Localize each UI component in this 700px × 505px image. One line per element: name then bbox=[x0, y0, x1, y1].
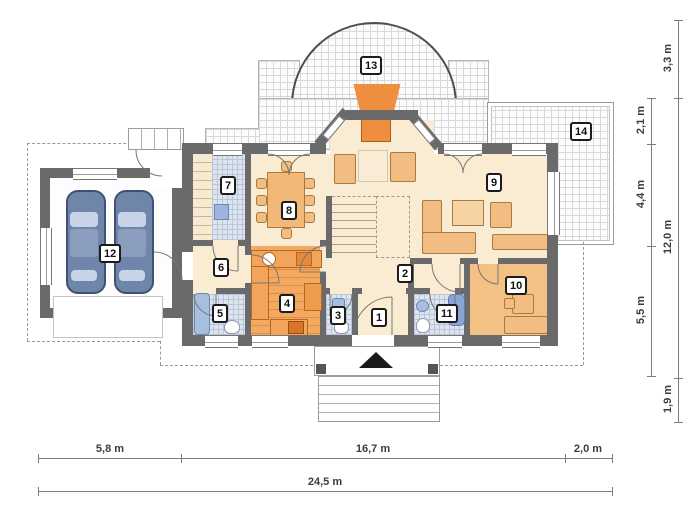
room-label-14: 14 bbox=[570, 122, 592, 141]
car-roof bbox=[70, 229, 98, 257]
car-rear-window bbox=[119, 270, 145, 281]
wall bbox=[326, 196, 332, 258]
dim-tick bbox=[674, 378, 683, 379]
dim-label-12-0: 12,0 m bbox=[662, 207, 674, 267]
garage-apron bbox=[53, 296, 163, 338]
chair bbox=[304, 212, 315, 223]
desk bbox=[504, 316, 548, 334]
wall bbox=[352, 294, 358, 335]
porch-post-right bbox=[428, 364, 438, 374]
basement-stairs bbox=[193, 154, 212, 244]
wall bbox=[394, 335, 428, 346]
french-door bbox=[268, 143, 310, 156]
wall bbox=[547, 143, 558, 172]
dim-label-2-1: 2,1 m bbox=[635, 90, 647, 150]
car-roof bbox=[118, 229, 146, 257]
wall bbox=[414, 288, 430, 294]
dim-label-24-5: 24,5 m bbox=[295, 476, 355, 488]
chair bbox=[304, 178, 315, 189]
chair bbox=[256, 178, 267, 189]
room-label-9: 9 bbox=[486, 173, 502, 192]
dim-line-bottom-total bbox=[38, 491, 612, 492]
sideboard bbox=[492, 234, 552, 250]
sink bbox=[416, 300, 429, 312]
car-rear-window bbox=[71, 270, 97, 281]
chair bbox=[281, 228, 292, 239]
room-label-12: 12 bbox=[99, 244, 121, 263]
rug bbox=[358, 150, 388, 182]
wall bbox=[540, 335, 558, 346]
kitchen-sink bbox=[262, 252, 276, 266]
wall bbox=[288, 335, 352, 346]
wall bbox=[482, 143, 512, 154]
floor-plan: 1 2 3 4 5 6 7 8 9 10 11 12 13 14 5,8 m 1… bbox=[0, 0, 700, 505]
roof-outline-left bbox=[27, 143, 28, 341]
wall bbox=[182, 335, 205, 346]
dim-tick bbox=[647, 246, 656, 247]
dim-label-3-3: 3,3 m bbox=[662, 28, 674, 88]
stove bbox=[288, 321, 304, 334]
dim-tick bbox=[612, 454, 613, 463]
room-label-2: 2 bbox=[397, 264, 413, 283]
roof-outline-step bbox=[160, 341, 161, 365]
garage-window-top bbox=[73, 168, 117, 180]
dim-tick bbox=[647, 376, 656, 377]
dim-label-5-8: 5,8 m bbox=[80, 443, 140, 455]
table bbox=[512, 294, 534, 314]
chair bbox=[304, 195, 315, 206]
porch-post-left bbox=[316, 364, 326, 374]
car-windshield bbox=[118, 212, 146, 227]
roof-outline-garage-bottom bbox=[27, 341, 160, 342]
window bbox=[502, 335, 540, 348]
window bbox=[252, 335, 288, 348]
car bbox=[66, 190, 106, 294]
dim-tick bbox=[612, 487, 613, 496]
dim-tick bbox=[674, 422, 683, 423]
dim-tick bbox=[565, 454, 566, 463]
wall bbox=[462, 335, 502, 346]
dim-tick bbox=[38, 454, 39, 463]
dim-tick bbox=[181, 454, 182, 463]
wall bbox=[193, 240, 213, 246]
dim-line-bottom-segments bbox=[38, 458, 612, 459]
dim-tick bbox=[38, 487, 39, 496]
room-label-8: 8 bbox=[281, 201, 297, 220]
room-label-6: 6 bbox=[213, 258, 229, 277]
dim-tick bbox=[674, 98, 683, 99]
dim-line-right-inner bbox=[651, 98, 652, 376]
garage-side-porch bbox=[150, 150, 182, 188]
room-label-4: 4 bbox=[279, 294, 295, 313]
window bbox=[512, 143, 546, 156]
room-label-11: 11 bbox=[436, 304, 458, 323]
bathtub bbox=[194, 293, 210, 335]
staircase-treads bbox=[332, 196, 376, 259]
loveseat bbox=[334, 154, 356, 184]
fridge bbox=[304, 283, 322, 311]
room-label-10: 10 bbox=[505, 276, 527, 295]
car bbox=[114, 190, 154, 294]
chair bbox=[256, 212, 267, 223]
terrace-door-window bbox=[547, 172, 560, 235]
window bbox=[213, 143, 242, 156]
chair bbox=[281, 161, 292, 172]
dim-label-2-0: 2,0 m bbox=[558, 443, 618, 455]
window bbox=[205, 335, 238, 348]
loveseat bbox=[390, 152, 416, 182]
room-label-13: 13 bbox=[360, 56, 382, 75]
roof-outline-right bbox=[583, 242, 584, 365]
chair bbox=[256, 195, 267, 206]
room-label-5: 5 bbox=[212, 304, 228, 323]
dim-label-16-7: 16,7 m bbox=[343, 443, 403, 455]
dim-line-right-outer bbox=[678, 20, 679, 422]
wall bbox=[547, 235, 558, 346]
room-label-3: 3 bbox=[330, 306, 346, 325]
washer bbox=[214, 204, 229, 220]
coffee-table bbox=[452, 200, 484, 226]
chair bbox=[504, 298, 515, 309]
porch-steps bbox=[318, 376, 440, 422]
wall bbox=[238, 240, 251, 246]
french-door bbox=[444, 143, 482, 156]
dim-tick bbox=[647, 98, 656, 99]
front-door-opening bbox=[352, 335, 394, 346]
wall bbox=[238, 335, 252, 346]
window bbox=[428, 335, 462, 348]
staircase-landing-dashed bbox=[376, 196, 410, 258]
wall bbox=[216, 288, 251, 294]
wall bbox=[242, 143, 268, 154]
room-label-7: 7 bbox=[220, 176, 236, 195]
wall bbox=[326, 288, 330, 294]
toilet bbox=[416, 318, 430, 333]
kitchen-hob bbox=[296, 252, 312, 266]
kitchen-counter-left bbox=[251, 266, 269, 320]
dim-tick bbox=[674, 20, 683, 21]
wall bbox=[182, 143, 193, 252]
room-label-1: 1 bbox=[371, 308, 387, 327]
armchair bbox=[490, 202, 512, 228]
dim-label-1-9: 1,9 m bbox=[662, 369, 674, 429]
garage-side-steps bbox=[128, 128, 184, 150]
car-windshield bbox=[70, 212, 98, 227]
sectional-sofa-horizontal bbox=[422, 232, 476, 254]
dim-label-4-4: 4,4 m bbox=[635, 164, 647, 224]
garage-window-left bbox=[40, 228, 52, 285]
dim-tick bbox=[647, 144, 656, 145]
room-7-floor bbox=[212, 154, 245, 240]
dim-label-5-5: 5,5 m bbox=[635, 280, 647, 340]
